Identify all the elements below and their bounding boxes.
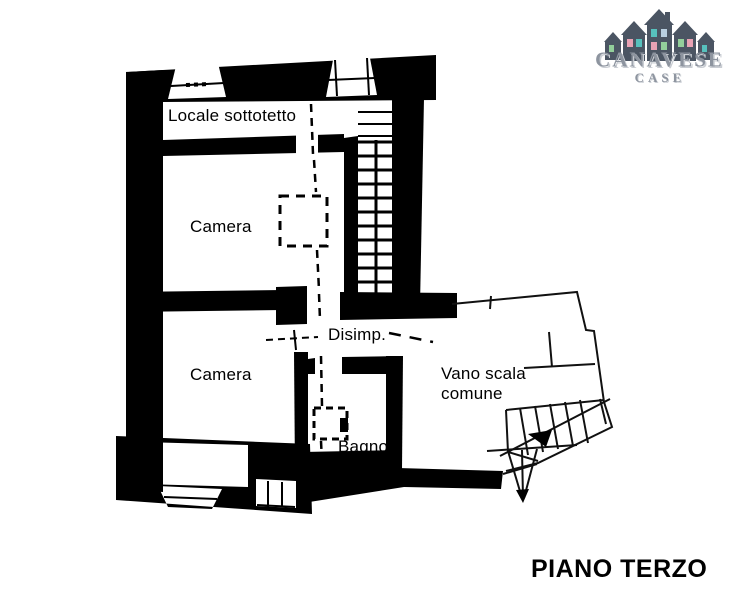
room-label-bagno: Bagno [338,437,388,457]
room-label-disimpegno: Disimp. [328,325,386,345]
floor-caption: PIANO TERZO [531,555,707,584]
floorplan-page: Locale sottotetto Camera Camera Disimp. … [0,0,740,600]
staircase-lower [487,399,610,461]
staircase-upper [357,112,394,298]
floorplan-drawing [0,0,740,600]
logo-subname: CASE [635,70,686,85]
room-label-locale-sottotetto: Locale sottotetto [168,106,296,126]
door-openings [296,130,318,158]
vano-scala-line1: Vano scala [441,364,526,384]
agency-logo: CANAVESE CANAVESE CASE CASE [592,4,732,88]
skylight-dashed-square-bathroom [314,408,348,439]
vano-scala-line2: comune [441,384,526,404]
logo-name: CANAVESE [595,48,724,72]
room-label-camera-lower: Camera [190,365,252,385]
room-label-vano-scala: Vano scala comune [441,364,526,404]
logo-wordmark: CANAVESE CANAVESE CASE CASE [595,48,725,87]
skylight-dashed-square-bedroom [280,196,327,246]
room-label-camera-upper: Camera [190,217,252,237]
